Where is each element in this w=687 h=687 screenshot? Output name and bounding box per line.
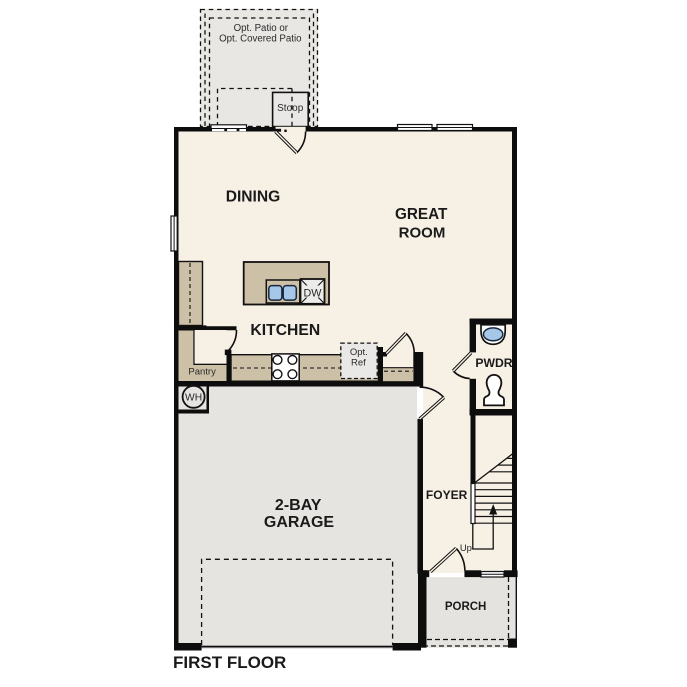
svg-text:FOYER: FOYER (426, 488, 468, 502)
svg-text:Opt. Covered Patio: Opt. Covered Patio (219, 33, 301, 44)
svg-text:Ref: Ref (351, 358, 366, 369)
svg-text:WH: WH (185, 393, 202, 404)
svg-text:FIRST FLOOR: FIRST FLOOR (173, 653, 286, 672)
svg-text:PORCH: PORCH (445, 601, 487, 613)
svg-text:DW: DW (304, 287, 323, 299)
svg-text:Stoop: Stoop (277, 103, 304, 114)
svg-text:KITCHEN: KITCHEN (250, 322, 320, 339)
svg-text:GARAGE: GARAGE (264, 514, 335, 531)
svg-text:GREAT: GREAT (395, 206, 448, 223)
svg-text:Opt.: Opt. (350, 347, 368, 358)
svg-text:2-BAY: 2-BAY (275, 497, 322, 514)
svg-text:PWDR: PWDR (475, 356, 512, 370)
svg-text:DINING: DINING (226, 189, 281, 206)
svg-text:ROOM: ROOM (399, 224, 446, 241)
svg-text:Up: Up (460, 543, 472, 554)
svg-text:Opt. Patio or: Opt. Patio or (234, 23, 289, 34)
svg-text:Pantry: Pantry (188, 367, 216, 378)
